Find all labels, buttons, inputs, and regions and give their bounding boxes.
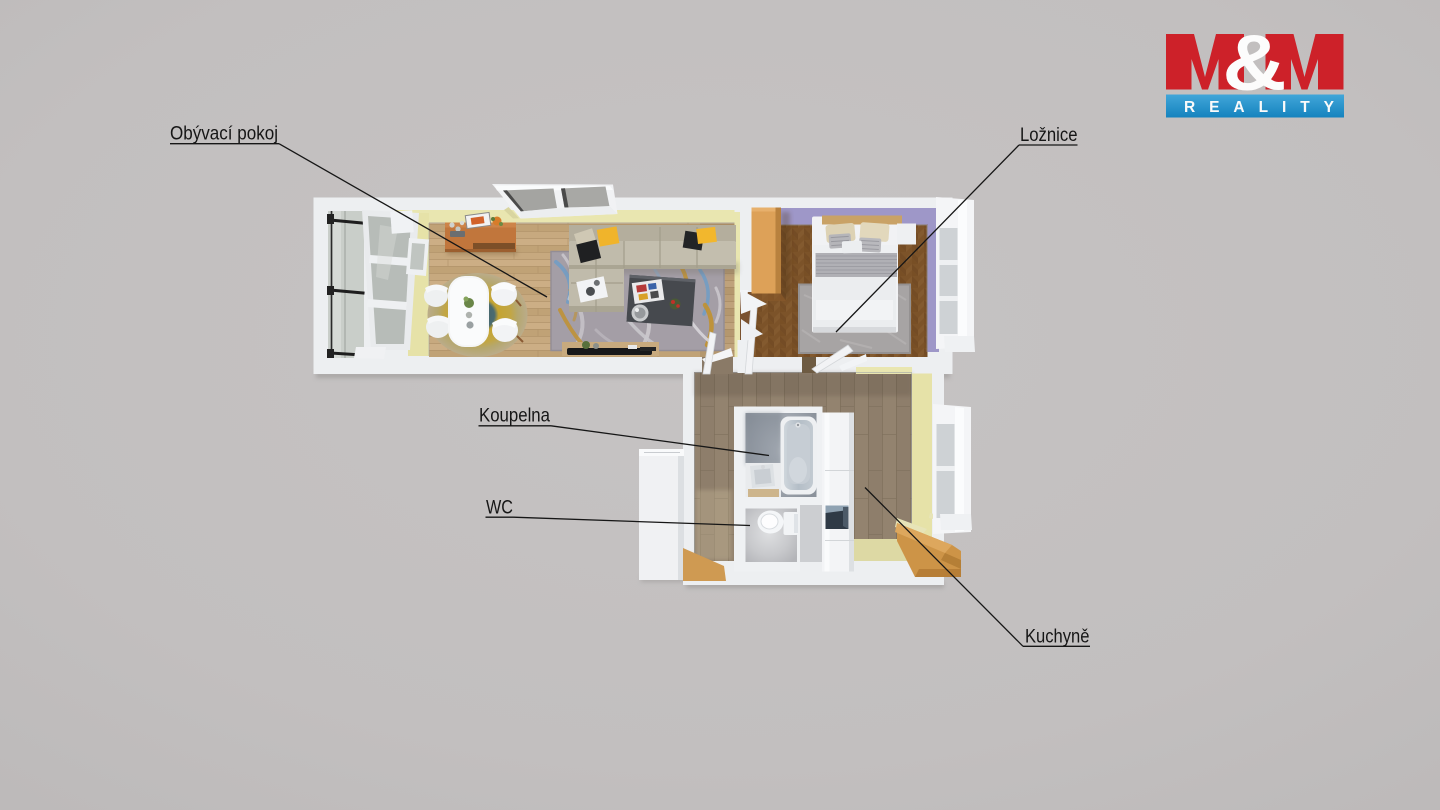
- svg-text:Obývací pokoj: Obývací pokoj: [170, 123, 278, 145]
- svg-text:WC: WC: [486, 497, 513, 519]
- svg-text:Koupelna: Koupelna: [479, 405, 550, 427]
- svg-text:Ložnice: Ložnice: [1020, 124, 1078, 146]
- svg-text:&: &: [1222, 18, 1286, 106]
- svg-text:Kuchyně: Kuchyně: [1025, 626, 1090, 648]
